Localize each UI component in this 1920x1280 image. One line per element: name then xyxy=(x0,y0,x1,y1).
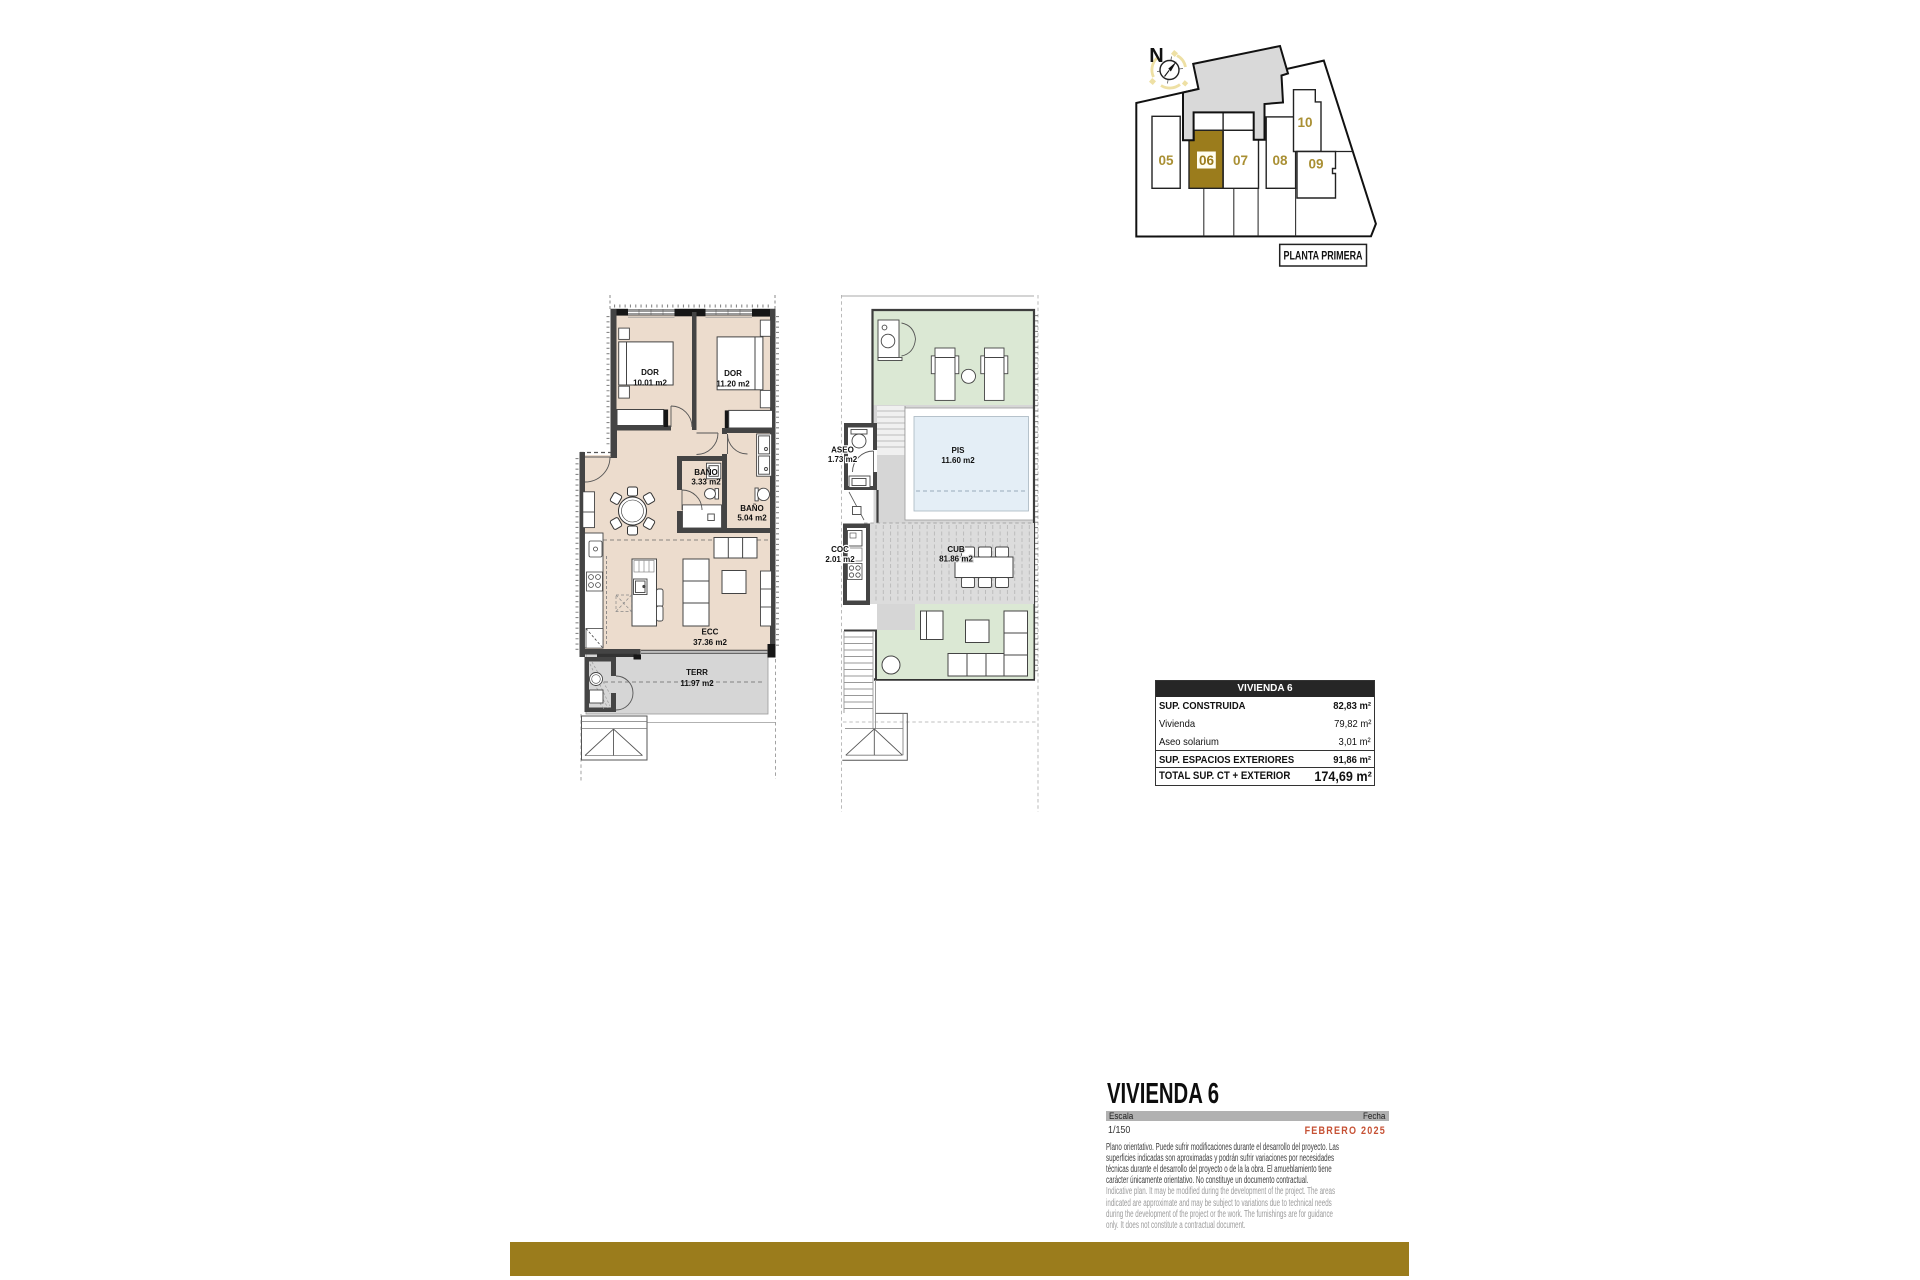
svg-text:CUB: CUB xyxy=(947,545,965,554)
svg-text:08: 08 xyxy=(1272,153,1288,168)
svg-text:06: 06 xyxy=(1199,153,1215,168)
svg-text:11.60 m2: 11.60 m2 xyxy=(941,456,975,465)
svg-text:10: 10 xyxy=(1297,115,1312,130)
svg-text:11.97 m2: 11.97 m2 xyxy=(680,679,714,688)
svg-text:10.01 m2: 10.01 m2 xyxy=(633,379,667,388)
svg-text:BAÑO: BAÑO xyxy=(694,468,718,477)
svg-text:DOR: DOR xyxy=(724,369,742,378)
svg-text:3.33 m2: 3.33 m2 xyxy=(691,478,721,487)
svg-text:09: 09 xyxy=(1308,157,1323,172)
svg-text:1.73 m2: 1.73 m2 xyxy=(828,455,858,464)
svg-text:5.04 m2: 5.04 m2 xyxy=(737,514,767,523)
svg-text:N: N xyxy=(1149,45,1163,67)
svg-text:ECC: ECC xyxy=(702,628,719,637)
svg-text:11.20 m2: 11.20 m2 xyxy=(716,380,750,389)
svg-text:ASEO: ASEO xyxy=(831,446,854,455)
svg-text:2.01 m2: 2.01 m2 xyxy=(825,555,855,564)
svg-text:37.36 m2: 37.36 m2 xyxy=(693,638,727,647)
svg-text:DOR: DOR xyxy=(641,368,659,377)
svg-text:PLANTA PRIMERA: PLANTA PRIMERA xyxy=(1284,251,1363,263)
svg-text:COC: COC xyxy=(831,545,849,554)
svg-text:05: 05 xyxy=(1158,153,1174,168)
svg-text:TERR: TERR xyxy=(686,668,708,677)
svg-text:PIS: PIS xyxy=(952,446,966,455)
svg-text:BAÑO: BAÑO xyxy=(740,504,764,513)
svg-text:81.86 m2: 81.86 m2 xyxy=(939,555,973,564)
svg-text:07: 07 xyxy=(1233,153,1248,168)
